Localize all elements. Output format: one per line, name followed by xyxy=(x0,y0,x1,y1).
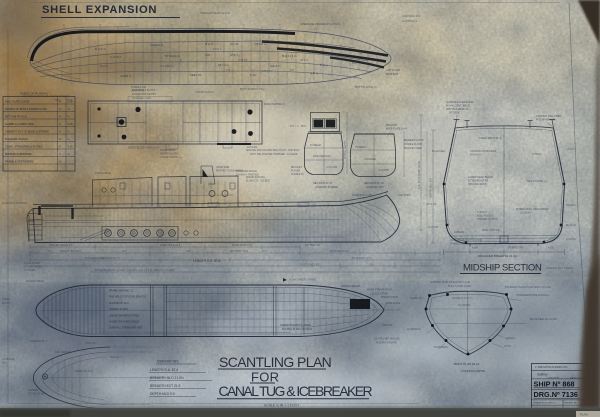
svg-text:PLATES OF BOW & STERN PLATE: PLATES OF BOW & STERN PLATE xyxy=(5,107,47,111)
svg-text:B.H.S: B.H.S xyxy=(330,52,338,56)
svg-text:LOOKING FORWD: LOOKING FORWD xyxy=(315,185,338,189)
svg-text:STERN: STERN xyxy=(2,299,10,301)
svg-text:6½×¼ FLG: 6½×¼ FLG xyxy=(470,153,482,157)
svg-text:BOILER SPACE 8.0: BOILER SPACE 8.0 xyxy=(50,244,73,247)
svg-text:CANT FR: CANT FR xyxy=(382,324,393,327)
svg-text:VENT PIPE: VENT PIPE xyxy=(131,90,144,93)
svg-text:TRANSOM PL ⅜: TRANSOM PL ⅜ xyxy=(30,340,47,343)
svg-text:SECTION AT 27: SECTION AT 27 xyxy=(313,181,333,185)
svg-text:4.8: 4.8 xyxy=(290,68,294,72)
svg-text:2½×2½×¼ RIVETED: 2½×2½×¼ RIVETED xyxy=(236,173,259,177)
svg-text:BILGE KEEL 6¼×⅜ RIV.: BILGE KEEL 6¼×⅜ RIV. xyxy=(530,318,558,321)
svg-text:4.8×4 ¼: 4.8×4 ¼ xyxy=(270,64,281,68)
svg-text:4.650: 4.650 xyxy=(472,247,479,250)
svg-text:10 PLATE: 10 PLATE xyxy=(428,226,439,229)
svg-text:B.H.S ⅜: B.H.S ⅜ xyxy=(95,47,106,51)
svg-text:PLAN ½ SIDE GIVEN: PLAN ½ SIDE GIVEN xyxy=(448,284,472,288)
svg-text:B.H × ¼ · BHD: B.H × ¼ · BHD xyxy=(290,125,306,128)
svg-text:LENGTH O.A. 87.6: LENGTH O.A. 87.6 xyxy=(150,368,178,372)
svg-text:SIDE PLATING ⁵⁄₁₆: SIDE PLATING ⁵⁄₁₆ xyxy=(527,179,547,183)
svg-text:STK ⁵⁄₁₆: STK ⁵⁄₁₆ xyxy=(230,53,241,57)
svg-text:OAK STEM: OAK STEM xyxy=(398,194,410,197)
svg-text:⅜ PLATE: ⅜ PLATE xyxy=(566,238,576,241)
svg-text:STEM PLATE: STEM PLATE xyxy=(386,302,401,305)
svg-text:ICE PL ½: ICE PL ½ xyxy=(335,47,347,51)
svg-text:BOTTOM OF HULL: BOTTOM OF HULL xyxy=(5,114,28,118)
svg-text:AFT BODY 41.0: AFT BODY 41.0 xyxy=(230,250,249,253)
svg-text:GILT: GILT xyxy=(2,363,8,365)
svg-text:DECK PL ¼: DECK PL ¼ xyxy=(110,356,122,359)
svg-text:SPACING 42 INS: SPACING 42 INS xyxy=(468,183,487,186)
svg-text:BODY PLAN № 10: BODY PLAN № 10 xyxy=(454,362,480,366)
svg-text:10 FR: 10 FR xyxy=(504,345,511,348)
svg-text:SHEER ⅜: SHEER ⅜ xyxy=(150,43,164,47)
svg-text:DOUBLE FLOOR: DOUBLE FLOOR xyxy=(404,144,422,146)
svg-text:AT STERN: AT STERN xyxy=(24,269,35,272)
svg-text:KNEE PLATE 10×¼: KNEE PLATE 10×¼ xyxy=(386,128,408,131)
svg-text:CANT FR: CANT FR xyxy=(85,342,96,345)
svg-text:4½ BEAM: 4½ BEAM xyxy=(310,143,321,147)
svg-text:PASSED BY: PASSED BY xyxy=(565,402,578,405)
svg-text:DOUBLING PLATE TO EXTEND ⅜ PLA: DOUBLING PLATE TO EXTEND ⅜ PLATE xyxy=(505,286,551,289)
svg-text:STERN FR 2×⅜: STERN FR 2×⅜ xyxy=(75,370,92,373)
svg-text:DEPTH MLD 9.9: DEPTH MLD 9.9 xyxy=(150,392,175,396)
svg-text:BOTT PLATING ⅜: BOTT PLATING ⅜ xyxy=(355,85,377,89)
svg-text:BILGE PL: BILGE PL xyxy=(566,225,577,227)
svg-text:MOULDED DIMENSION 84.7½: MOULDED DIMENSION 84.7½ xyxy=(85,256,121,260)
svg-text:Thick: Thick xyxy=(67,100,73,102)
svg-text:14.6: 14.6 xyxy=(186,251,191,253)
svg-text:A.B ¼: A.B ¼ xyxy=(310,71,318,75)
svg-text:DRG.Nº 7136: DRG.Nº 7136 xyxy=(534,390,578,399)
svg-text:GARB ⅜: GARB ⅜ xyxy=(120,74,132,78)
svg-text:STOCK 3½ DIA: STOCK 3½ DIA xyxy=(28,392,45,396)
svg-text:LIMBER BOARDS 5⁄₁₆ DECK: LIMBER BOARDS 5⁄₁₆ DECK xyxy=(280,324,312,327)
svg-text:MIDSHIP STRINGERS: MIDSHIP STRINGERS xyxy=(5,152,32,156)
svg-text:PLAN: PLAN xyxy=(580,413,588,417)
svg-text:KEEL PLATE & RISE: KEEL PLATE & RISE xyxy=(5,99,30,103)
svg-text:FORE BODY 21.3: FORE BODY 21.3 xyxy=(352,258,371,260)
svg-text:BOW BAR: BOW BAR xyxy=(386,72,398,76)
svg-text:A.B 6 ¼: A.B 6 ¼ xyxy=(262,69,272,73)
svg-text:CAPPING ¾: CAPPING ¾ xyxy=(402,19,418,23)
svg-text:B.H 28: B.H 28 xyxy=(230,42,239,46)
svg-text:IN WAY OF CARGO HOLD: IN WAY OF CARGO HOLD xyxy=(109,321,139,324)
svg-text:6.6.8 ¼: 6.6.8 ¼ xyxy=(213,47,223,51)
svg-text:2.2½ PLY BKT ANGLES: 2.2½ PLY BKT ANGLES xyxy=(374,337,400,341)
svg-text:AFT PEAK 9.6: AFT PEAK 9.6 xyxy=(305,244,321,247)
svg-text:SHIP Nº 868: SHIP Nº 868 xyxy=(534,379,575,388)
svg-text:CABIN SIDE: CABIN SIDE xyxy=(216,166,229,169)
svg-text:B.H ⅜: B.H ⅜ xyxy=(205,42,214,46)
svg-text:PANTING BEAMS: PANTING BEAMS xyxy=(341,285,361,288)
svg-text:20 LB DOUG FIR DECK: 20 LB DOUG FIR DECK xyxy=(2,203,27,205)
svg-text:FORMING PLAN TO ROUND ½ LAID: FORMING PLAN TO ROUND ½ LAID xyxy=(430,280,470,284)
svg-text:STRAKE ⅜: STRAKE ⅜ xyxy=(165,54,180,58)
svg-text:DEPTH MLD 9.9: DEPTH MLD 9.9 xyxy=(429,178,433,198)
svg-text:28 c.s ¼: 28 c.s ¼ xyxy=(218,63,230,67)
svg-text:¾ OAK SHEER: ¾ OAK SHEER xyxy=(24,262,40,265)
svg-text:PITCHPINE 6×2½: PITCHPINE 6×2½ xyxy=(536,118,557,122)
svg-text:5.16 PLT: 5.16 PLT xyxy=(110,55,122,59)
svg-text:4½ BEAM: 4½ BEAM xyxy=(355,145,366,149)
svg-text:LIMBERS: LIMBERS xyxy=(454,232,465,234)
svg-text:SHEER PL ¼: SHEER PL ¼ xyxy=(410,297,425,300)
svg-text:10 FRAME: 10 FRAME xyxy=(364,158,376,161)
svg-text:4×3½×⅜: 4×3½×⅜ xyxy=(477,210,486,214)
svg-text:7.8: 7.8 xyxy=(226,68,230,72)
svg-text:FLOORS ⅜ PLATE: FLOORS ⅜ PLATE xyxy=(376,341,397,344)
svg-text:TABLE OF PLATING: TABLE OF PLATING xyxy=(20,92,48,96)
svg-text:B.H 4.15 ¼: B.H 4.15 ¼ xyxy=(282,54,297,58)
svg-text:A DECK: A DECK xyxy=(506,337,515,340)
svg-text:21 SPACING: 21 SPACING xyxy=(407,328,421,331)
svg-text:GARBD & LOWER SIDE: GARBD & LOWER SIDE xyxy=(5,122,34,126)
svg-text:21.0: 21.0 xyxy=(122,251,127,253)
svg-text:NO FRAME: NO FRAME xyxy=(458,304,471,307)
svg-text:PLATING AT 21⅛: PLATING AT 21⅛ xyxy=(109,302,130,305)
svg-text:SIDE FR.: SIDE FR. xyxy=(427,204,437,206)
svg-text:DRAWN BY W. WELLS: DRAWN BY W. WELLS xyxy=(533,402,556,405)
svg-text:MIDSHIP SECTION: MIDSHIP SECTION xyxy=(463,262,542,273)
svg-text:FRAME & STIFFENERS: FRAME & STIFFENERS xyxy=(5,159,34,163)
svg-text:FRAMES: FRAMES xyxy=(566,204,576,207)
svg-text:5.16: 5.16 xyxy=(145,70,151,74)
svg-text:5.16 PL: 5.16 PL xyxy=(238,58,248,62)
svg-text:21 INS CTS · ICE BELT: 21 INS CTS · ICE BELT xyxy=(246,181,271,183)
svg-text:No of: No of xyxy=(55,100,61,102)
svg-text:LENGTH B.P. 82.0: LENGTH B.P. 82.0 xyxy=(60,250,81,253)
svg-text:LENGTH O.A. 87.6: LENGTH O.A. 87.6 xyxy=(193,259,221,263)
svg-text:SECTION AT 10: SECTION AT 10 xyxy=(364,181,384,185)
svg-text:STRAKE FITTED: STRAKE FITTED xyxy=(24,266,42,269)
svg-text:¾ FLOOR: ¾ FLOOR xyxy=(326,166,337,169)
svg-text:SHEERST. PLT OF BODY & STRAKE: SHEERST. PLT OF BODY & STRAKE xyxy=(5,129,49,133)
svg-text:5.16: 5.16 xyxy=(68,122,74,126)
svg-text:Saltney: Saltney xyxy=(537,373,548,377)
svg-text:MOULDED BREADTH 21.6⅛: MOULDED BREADTH 21.6⅛ xyxy=(478,254,518,258)
svg-text:STR: STR xyxy=(205,53,210,57)
svg-text:8.8.8 ¼ × ¼: 8.8.8 ¼ × ¼ xyxy=(310,49,325,53)
svg-text:½ OAK SHEER STRAKE: ½ OAK SHEER STRAKE xyxy=(289,278,316,282)
svg-text:WOOD BLOCK CHOCKS ¾: WOOD BLOCK CHOCKS ¾ xyxy=(128,147,160,150)
svg-text:5.16: 5.16 xyxy=(68,144,74,148)
svg-text:5⅛ R⁄PL 7 PRS: 5⅛ R⁄PL 7 PRS xyxy=(508,247,525,250)
svg-text:TANK TOP PL 5⁄₁₆: TANK TOP PL 5⁄₁₆ xyxy=(482,229,501,232)
svg-text:COVE LINE: COVE LINE xyxy=(2,359,15,361)
svg-text:DIMENSIONS: DIMENSIONS xyxy=(157,360,179,364)
svg-text:⅜ FLOOR: ⅜ FLOOR xyxy=(378,169,389,172)
svg-text:KEEL PL: KEEL PL xyxy=(190,73,202,77)
svg-text:BULWARK PLATES: BULWARK PLATES xyxy=(5,137,28,141)
svg-text:FORE PEAK 10.0: FORE PEAK 10.0 xyxy=(232,244,252,247)
svg-text:BREADTH MLD 21.6⅛: BREADTH MLD 21.6⅛ xyxy=(150,376,184,380)
svg-text:B.S ¼: B.S ¼ xyxy=(320,63,328,67)
svg-text:RUDDER TRUNK: RUDDER TRUNK xyxy=(26,281,45,283)
svg-text:B.H: B.H xyxy=(352,61,357,65)
svg-text:9.0 MLD DEPTH: 9.0 MLD DEPTH xyxy=(344,141,347,159)
svg-text:FORE HOLD 14.6: FORE HOLD 14.6 xyxy=(160,244,181,247)
svg-text:BREADTH EXT 21.9: BREADTH EXT 21.9 xyxy=(150,384,181,388)
svg-text:A PLAIN PLATE ⁵⁄₁₆: A PLAIN PLATE ⁵⁄₁₆ xyxy=(160,155,182,159)
svg-text:3½×12×¼: 3½×12×¼ xyxy=(520,211,532,215)
svg-text:FR 2×⅜: FR 2×⅜ xyxy=(2,302,10,305)
svg-text:PLATING IN WAY OF HOLD: PLATING IN WAY OF HOLD xyxy=(282,328,312,331)
svg-text:FRAME SPACING 21: FRAME SPACING 21 xyxy=(109,290,134,293)
svg-text:28.8.8 ¼: 28.8.8 ¼ xyxy=(255,42,267,46)
svg-text:BILGE KEEL: BILGE KEEL xyxy=(432,151,446,153)
svg-text:CUT DOWN: CUT DOWN xyxy=(386,68,400,72)
svg-text:BRACKET KNEE: BRACKET KNEE xyxy=(404,147,422,150)
svg-text:BRACKET: BRACKET xyxy=(291,166,302,169)
svg-text:OAK RAIL 3×2: OAK RAIL 3×2 xyxy=(402,14,421,18)
svg-text:DOUBLE PL: DOUBLE PL xyxy=(291,174,305,176)
svg-text:STEEL DECK PL ¼: STEEL DECK PL ¼ xyxy=(479,136,503,140)
svg-text:7.8 LAP ¼: 7.8 LAP ¼ xyxy=(160,64,174,68)
svg-text:POST SPACE 8.0: POST SPACE 8.0 xyxy=(300,263,320,266)
svg-text:BUTT STRAPS 7×¼: BUTT STRAPS 7×¼ xyxy=(240,87,265,91)
svg-text:WITH THE CHANNEL STRINGER · 12: WITH THE CHANNEL STRINGER · 12 LEAVE xyxy=(250,153,298,156)
svg-text:J. CRICHTON & SONS LTD: J. CRICHTON & SONS LTD xyxy=(535,365,567,369)
svg-text:2×PINE DECK: 2×PINE DECK xyxy=(95,172,112,175)
svg-text:LOOKING FORWD: LOOKING FORWD xyxy=(461,369,485,373)
svg-text:3.25 ICE STRAP: 3.25 ICE STRAP xyxy=(370,292,388,295)
svg-text:O.B. 4½×3 DEEP HOLD: O.B. 4½×3 DEEP HOLD xyxy=(417,161,421,189)
svg-text:AVERAGE FRAME 2½×2½×¼: AVERAGE FRAME 2½×2½×¼ xyxy=(300,22,341,26)
svg-text:MACH SPACE 4.6: MACH SPACE 4.6 xyxy=(330,250,350,253)
svg-text:STEM BAR 4×1½: STEM BAR 4×1½ xyxy=(352,193,373,197)
svg-text:CABIN, STRINGERS & PLATES: CABIN, STRINGERS & PLATES xyxy=(5,144,43,148)
svg-text:10 PLAN: 10 PLAN xyxy=(247,146,257,149)
svg-text:AT DECK: AT DECK xyxy=(449,112,460,115)
svg-text:OAK FENDER: OAK FENDER xyxy=(55,351,71,354)
svg-text:STRINGER PLATE 15×2⅛×¼: STRINGER PLATE 15×2⅛×¼ xyxy=(516,294,550,297)
svg-text:B.H.S ¾: B.H.S ¾ xyxy=(300,43,311,47)
svg-text:B DENOTES SEAMS: B DENOTES SEAMS xyxy=(132,93,156,96)
svg-text:LOOKING AFT: LOOKING AFT xyxy=(366,185,384,189)
svg-text:HATCH 3.0×2.6: HATCH 3.0×2.6 xyxy=(196,91,214,94)
svg-text:28 × ¼: 28 × ¼ xyxy=(300,58,309,62)
svg-text:STRAKE PLANS: STRAKE PLANS xyxy=(109,308,128,311)
svg-text:10 FRAMES: 10 FRAMES xyxy=(434,346,448,349)
svg-text:BACK PLATING ¼: BACK PLATING ¼ xyxy=(264,103,286,106)
svg-text:THE HOLD TO FLOOR SPACES: THE HOLD TO FLOOR SPACES xyxy=(109,296,146,299)
svg-text:JOGGLED LAPS: JOGGLED LAPS xyxy=(132,97,151,100)
svg-text:SCALE ½ IN = 1 FOOT: SCALE ½ IN = 1 FOOT xyxy=(546,266,573,270)
svg-text:SCANTLING PLAN: SCANTLING PLAN xyxy=(219,354,331,370)
svg-text:SIDE KEELSON: SIDE KEELSON xyxy=(313,155,331,158)
svg-text:CANAL TUG & ICEBREAKER: CANAL TUG & ICEBREAKER xyxy=(219,383,373,399)
svg-text:BEARERS FLOOR: BEARERS FLOOR xyxy=(404,139,424,142)
svg-text:5.16: 5.16 xyxy=(250,73,256,77)
svg-text:WASH STRAKE RIV PL: WASH STRAKE RIV PL xyxy=(367,289,393,292)
svg-text:AVERAGE BEAM 21.3×⅜: AVERAGE BEAM 21.3×⅜ xyxy=(200,11,231,15)
svg-text:¾ DECK: ¾ DECK xyxy=(566,148,575,151)
svg-text:OVER ALL STRINGERS AND: OVER ALL STRINGERS AND xyxy=(109,327,142,330)
svg-text:⅜ DECK: ⅜ DECK xyxy=(532,153,542,156)
svg-text:4.650: 4.650 xyxy=(548,247,555,250)
svg-text:BREAST HOOK: BREAST HOOK xyxy=(381,296,399,299)
svg-text:LIMBER BOARDS FITTED: LIMBER BOARDS FITTED xyxy=(109,314,139,317)
svg-text:RIVETED ⅜ PITCH: RIVETED ⅜ PITCH xyxy=(477,218,498,221)
svg-text:SHELL EXPANSION: SHELL EXPANSION xyxy=(42,4,157,16)
svg-text:FLANGE: FLANGE xyxy=(291,170,301,173)
svg-text:P.H ⅜: P.H ⅜ xyxy=(100,64,108,68)
svg-text:18.0: 18.0 xyxy=(262,251,267,253)
